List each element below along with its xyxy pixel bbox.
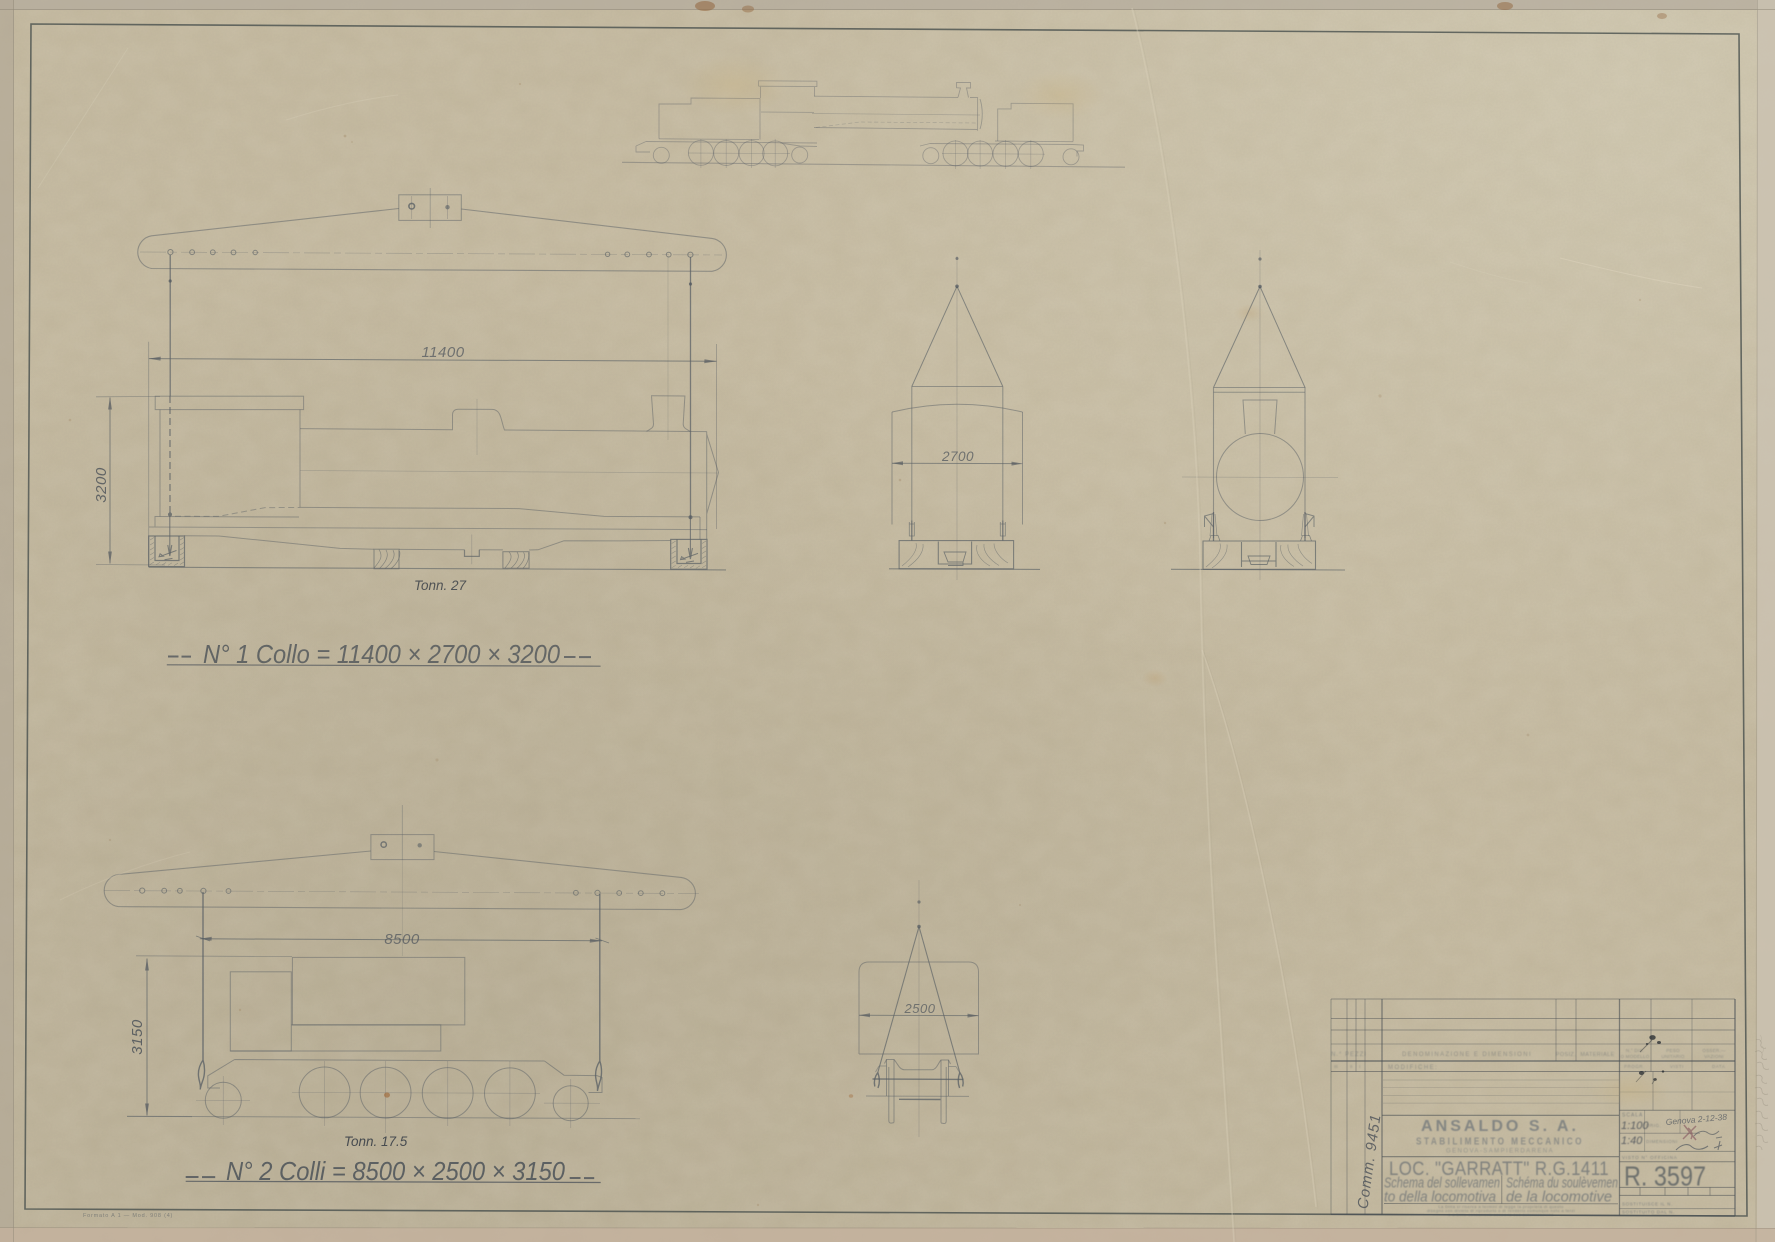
svg-text:DIMENSIONI: DIMENSIONI bbox=[1646, 1139, 1678, 1144]
svg-text:SOSTITUITO DAL N.: SOSTITUITO DAL N. bbox=[1622, 1210, 1675, 1215]
svg-text:MATERIALE: MATERIALE bbox=[1580, 1052, 1614, 1058]
svg-text:II: II bbox=[1350, 1064, 1353, 1069]
svg-text:VISTO N° OFFICINA: VISTO N° OFFICINA bbox=[1622, 1155, 1678, 1160]
svg-text:VISTI: VISTI bbox=[1670, 1064, 1684, 1069]
svg-text:1:40: 1:40 bbox=[1621, 1135, 1643, 1147]
svg-text:I: I bbox=[1359, 1064, 1360, 1069]
svg-text:N.° PEZZI: N.° PEZZI bbox=[1331, 1052, 1367, 1058]
svg-text:DATA: DATA bbox=[1712, 1064, 1725, 1069]
svg-text:O MODELLO: O MODELLO bbox=[1620, 1054, 1649, 1059]
svg-text:MODIFICHE:: MODIFICHE: bbox=[1388, 1065, 1438, 1071]
svg-text:3150: 3150 bbox=[129, 1019, 146, 1055]
svg-text:DENOMINAZIONE E DIMENSIONI: DENOMINAZIONE E DIMENSIONI bbox=[1402, 1052, 1532, 1058]
svg-text:ANSALDO S. A.: ANSALDO S. A. bbox=[1421, 1118, 1579, 1135]
svg-text:SOSTITUISCE IL N.: SOSTITUISCE IL N. bbox=[1622, 1202, 1673, 1207]
svg-text:Tonn. 17.5: Tonn. 17.5 bbox=[344, 1134, 408, 1149]
svg-text:OSSER.—: OSSER.— bbox=[1702, 1048, 1726, 1053]
svg-text:PROGR.: PROGR. bbox=[1624, 1064, 1645, 1069]
svg-text:o a Ditte concorrenti senza la: o a Ditte concorrenti senza la sua autor… bbox=[1448, 1212, 1554, 1217]
svg-text:VAZIONI: VAZIONI bbox=[1704, 1054, 1723, 1059]
svg-text:III: III bbox=[1334, 1064, 1338, 1069]
svg-text:1:100: 1:100 bbox=[1621, 1120, 1649, 1132]
svg-text:PESO: PESO bbox=[1666, 1048, 1680, 1053]
svg-text:STABILIMENTO MECCANICO: STABILIMENTO MECCANICO bbox=[1416, 1137, 1584, 1148]
svg-text:R. 3597: R. 3597 bbox=[1624, 1161, 1706, 1192]
svg-text:UNITARIO: UNITARIO bbox=[1661, 1054, 1684, 1059]
svg-text:SCALA: SCALA bbox=[1622, 1113, 1643, 1119]
svg-text:POSIZ.: POSIZ. bbox=[1556, 1052, 1577, 1058]
svg-text:GENOVA-SAMPIERDARENA: GENOVA-SAMPIERDARENA bbox=[1446, 1148, 1554, 1155]
svg-text:2700: 2700 bbox=[941, 449, 974, 464]
svg-text:Formato A 1 — Mod. 908 (4): Formato A 1 — Mod. 908 (4) bbox=[83, 1213, 173, 1219]
